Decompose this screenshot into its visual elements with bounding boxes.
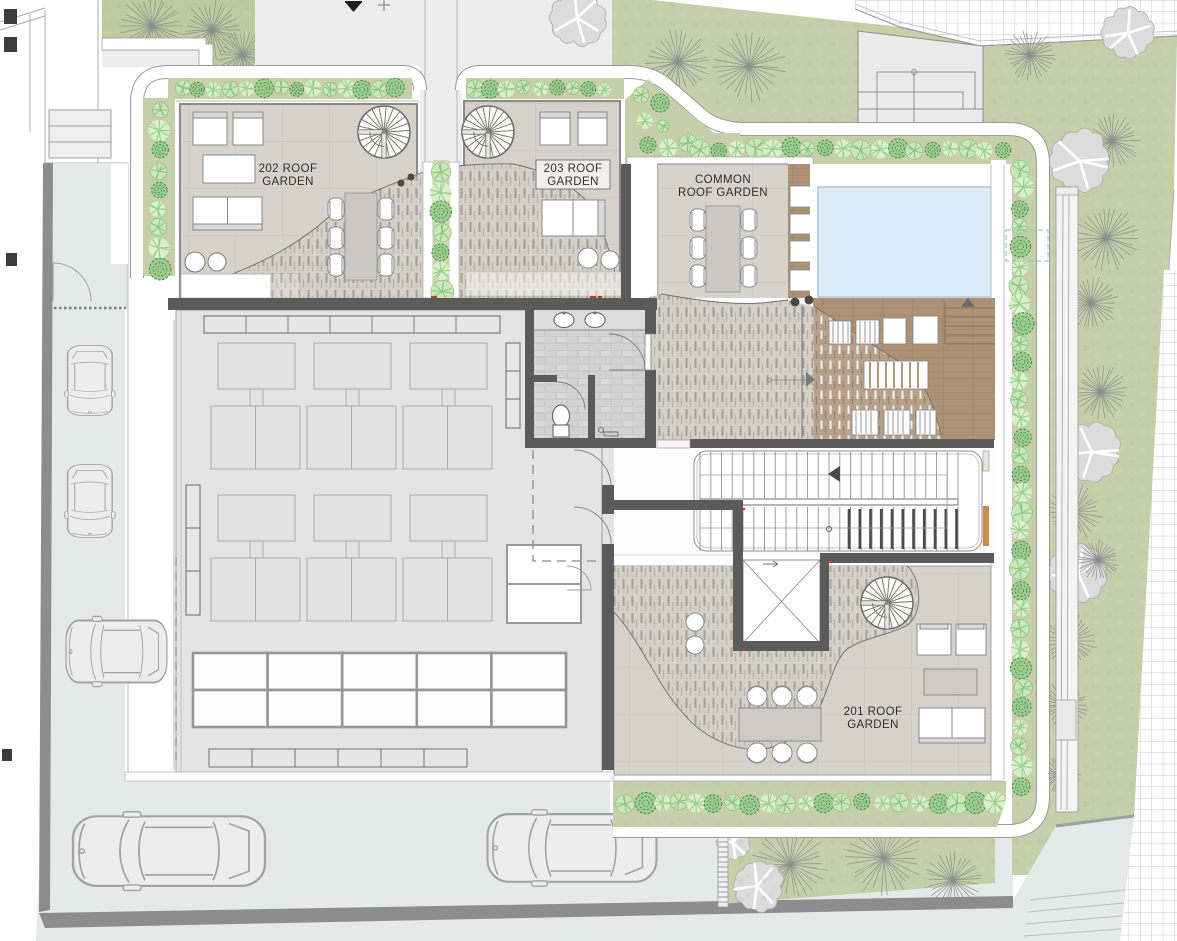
svg-text:203 ROOF: 203 ROOF [544, 163, 603, 175]
svg-text:202 ROOF: 202 ROOF [259, 163, 318, 175]
svg-text:201 ROOF: 201 ROOF [844, 706, 903, 718]
svg-text:ROOF GARDEN: ROOF GARDEN [678, 187, 768, 199]
svg-text:GARDEN: GARDEN [847, 719, 899, 731]
svg-text:COMMON: COMMON [695, 174, 751, 186]
svg-text:GARDEN: GARDEN [547, 176, 599, 188]
svg-text:GARDEN: GARDEN [262, 176, 314, 188]
